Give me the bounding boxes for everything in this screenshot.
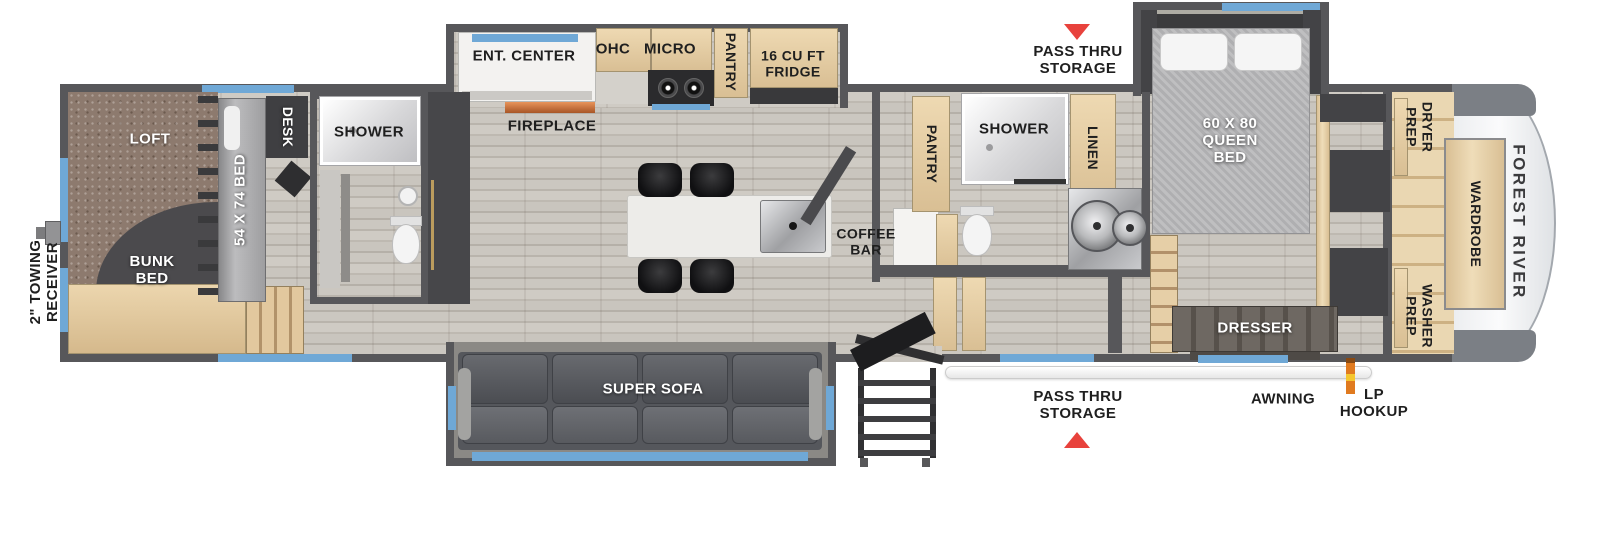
ent-center-label: ENT. CENTER: [473, 49, 576, 66]
coffee-bar-label: COFFEE BAR: [827, 226, 905, 257]
main-shower-stall: [962, 94, 1068, 184]
micro-label: MICRO: [644, 42, 696, 59]
bath-pantry-label: PANTRY: [923, 125, 939, 183]
dining-chair: [690, 163, 734, 197]
bedroom-overhead-cabinet: [1320, 94, 1386, 122]
entry-step: [858, 380, 936, 386]
ent-center-shelf: [462, 91, 592, 100]
main-shower-label: SHOWER: [979, 122, 1049, 139]
dining-chair: [638, 259, 682, 293]
super-sofa-label: SUPER SOFA: [603, 382, 704, 399]
awning-label: AWNING: [1251, 392, 1315, 409]
nightstand-cabinet: [1330, 248, 1388, 316]
sofa-slide-side-window: [826, 386, 834, 430]
wardrobe-handle: [431, 180, 434, 270]
hallway-half-wall: [962, 277, 986, 351]
bedroom-window: [1198, 355, 1288, 363]
sofa-seat-cushion: [642, 406, 728, 444]
vanity-basin-icon: [1112, 210, 1148, 246]
entry-step: [858, 434, 936, 440]
dresser-label: DRESSER: [1217, 321, 1292, 338]
bunk-vanity-edge: [341, 174, 350, 282]
fireplace-label: FIREPLACE: [508, 119, 597, 136]
desk-label: DESK: [279, 107, 295, 148]
bunk-toilet: [392, 224, 420, 264]
washer-prep-label: WASHER PREP: [1403, 279, 1434, 353]
lp-hookup-label: LP HOOKUP: [1336, 387, 1412, 421]
pass-thru-storage-bottom-label: PASS THRU STORAGE: [1028, 389, 1128, 423]
pillow: [1234, 33, 1302, 71]
tv-accent: [472, 34, 578, 42]
entry-step: [858, 450, 936, 456]
lp-hookup-cap: [1346, 358, 1355, 363]
lp-hookup-band: [1346, 374, 1355, 381]
loft-ladder: [198, 96, 218, 302]
hallway-wall: [1108, 277, 1122, 353]
hallway-half-wall: [933, 277, 957, 351]
bottom-wall-window: [1000, 354, 1094, 362]
wardrobe-label: WARDROBE: [1467, 181, 1483, 267]
bunk-bed-size-label: 54 X 74 BED: [233, 154, 250, 246]
bunk-pillow: [224, 106, 240, 150]
oven-handle: [652, 104, 710, 110]
pass-thru-arrow-up-icon: [1064, 432, 1090, 448]
bunk-bed-label: BUNK BED: [120, 254, 184, 288]
fireplace-insert: [505, 102, 595, 113]
awning-rail: [945, 366, 1372, 379]
kitchen-pantry-label: PANTRY: [722, 33, 738, 91]
towing-receiver-label: 2" TOWING RECEIVER: [28, 226, 62, 338]
sofa-back-cushion: [462, 354, 548, 404]
coffee-bar-side: [936, 214, 958, 272]
refrigerator-base: [750, 88, 838, 104]
main-toilet: [962, 214, 992, 256]
linen-label: LINEN: [1084, 126, 1100, 170]
pillow: [1160, 33, 1228, 71]
front-cap-bottom-band: [1452, 330, 1536, 362]
bottom-wall-window: [218, 354, 352, 362]
faucet-icon: [789, 222, 797, 230]
floorplan-canvas: LOFT BUNK BED 54 X 74 BED DESK SHOWER 2"…: [0, 0, 1600, 543]
sofa-seat-cushion: [732, 406, 818, 444]
sofa-armrest: [458, 368, 471, 440]
dryer-prep-label: DRYER PREP: [1403, 90, 1434, 164]
bath-wall-right: [1142, 92, 1150, 272]
bunk-shower-label: SHOWER: [334, 125, 404, 142]
step-foot: [922, 458, 930, 467]
brand-label: FOREST RIVER: [1509, 144, 1528, 300]
entry-step: [858, 398, 936, 404]
entry-step: [858, 416, 936, 422]
shower-door-sill: [1014, 179, 1066, 184]
front-cap-top-band: [1452, 84, 1536, 116]
nightstand-cabinet: [1330, 150, 1390, 212]
sofa-armrest: [809, 368, 822, 440]
sofa-slide-side-window: [448, 386, 456, 430]
dining-chair: [690, 259, 734, 293]
stove-burner-icon: [658, 78, 678, 98]
sofa-back-cushion: [732, 354, 818, 404]
step-foot: [860, 458, 868, 467]
bunk-wardrobe-cabinet: [428, 92, 470, 304]
fridge-label: 16 CU FT FRIDGE: [753, 48, 833, 79]
queen-bed-label: 60 X 80 QUEEN BED: [1184, 116, 1276, 166]
dining-chair: [638, 163, 682, 197]
pass-thru-arrow-down-icon: [1064, 24, 1090, 40]
kitchen-counter: [596, 72, 648, 104]
sofa-seat-cushion: [462, 406, 548, 444]
sofa-seat-cushion: [552, 406, 638, 444]
shower-drain-icon: [986, 144, 993, 151]
ohc-label: OHC: [596, 42, 631, 59]
bunk-vanity: [320, 170, 340, 288]
loft-label: LOFT: [130, 132, 171, 149]
pass-thru-storage-top-label: PASS THRU STORAGE: [1028, 44, 1128, 78]
sofa-slide-window: [472, 452, 808, 461]
bunk-sink: [398, 186, 418, 206]
stove-burner-icon: [684, 78, 704, 98]
